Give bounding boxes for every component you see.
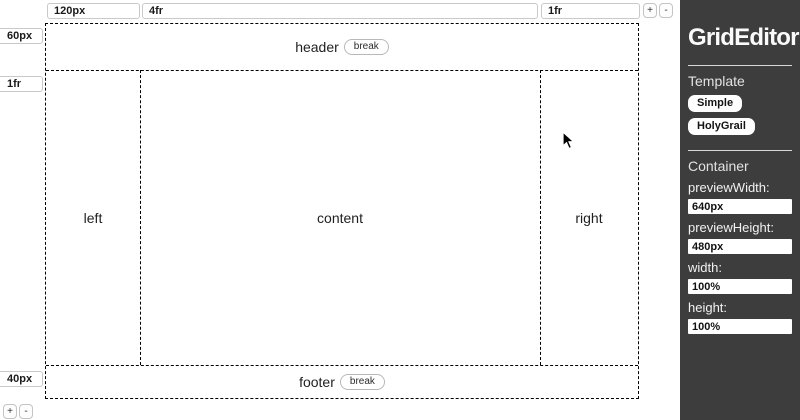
grid-area-footer-label: footer (299, 374, 335, 390)
grid-area-header[interactable]: header break (46, 24, 638, 70)
sidebar-divider (688, 65, 792, 66)
remove-row-button[interactable]: - (19, 404, 33, 419)
grid-editor-canvas: + - + - header break left content right … (0, 0, 680, 420)
row-track-input-2[interactable] (0, 76, 43, 92)
width-input[interactable] (688, 279, 792, 294)
column-track-input-1[interactable] (47, 3, 140, 19)
header-break-button[interactable]: break (344, 39, 389, 55)
grid-area-left-label: left (84, 210, 103, 226)
preview-height-label: previewHeight: (688, 220, 792, 235)
preview-width-input[interactable] (688, 199, 792, 214)
grid-area-right-label: right (575, 210, 602, 226)
sidebar-divider (688, 150, 792, 151)
grid-area-right[interactable]: right (540, 70, 638, 365)
column-track-input-3[interactable] (541, 3, 640, 19)
remove-column-button[interactable]: - (659, 3, 673, 18)
app-title: GridEditor (688, 24, 792, 52)
grid-preview: header break left content right footer b… (45, 23, 639, 399)
template-section-heading: Template (688, 73, 792, 89)
add-column-button[interactable]: + (643, 3, 657, 18)
grid-area-content[interactable]: content (140, 70, 540, 365)
mouse-cursor-icon (562, 131, 575, 150)
footer-break-button[interactable]: break (340, 374, 385, 390)
width-label: width: (688, 260, 792, 275)
grid-area-header-label: header (295, 39, 339, 55)
template-holygrail-button[interactable]: HolyGrail (688, 118, 755, 135)
template-simple-button[interactable]: Simple (688, 95, 742, 112)
height-label: height: (688, 300, 792, 315)
add-row-button[interactable]: + (3, 404, 17, 419)
preview-height-input[interactable] (688, 239, 792, 254)
grid-area-left[interactable]: left (46, 70, 140, 365)
column-track-input-2[interactable] (142, 3, 538, 19)
preview-width-label: previewWidth: (688, 180, 792, 195)
row-track-input-1[interactable] (0, 28, 43, 44)
sidebar: GridEditor Template Simple HolyGrail Con… (680, 0, 800, 420)
container-section-heading: Container (688, 158, 792, 174)
row-track-input-3[interactable] (0, 371, 43, 387)
grid-area-footer[interactable]: footer break (46, 365, 638, 398)
height-input[interactable] (688, 319, 792, 334)
grid-area-content-label: content (317, 210, 363, 226)
